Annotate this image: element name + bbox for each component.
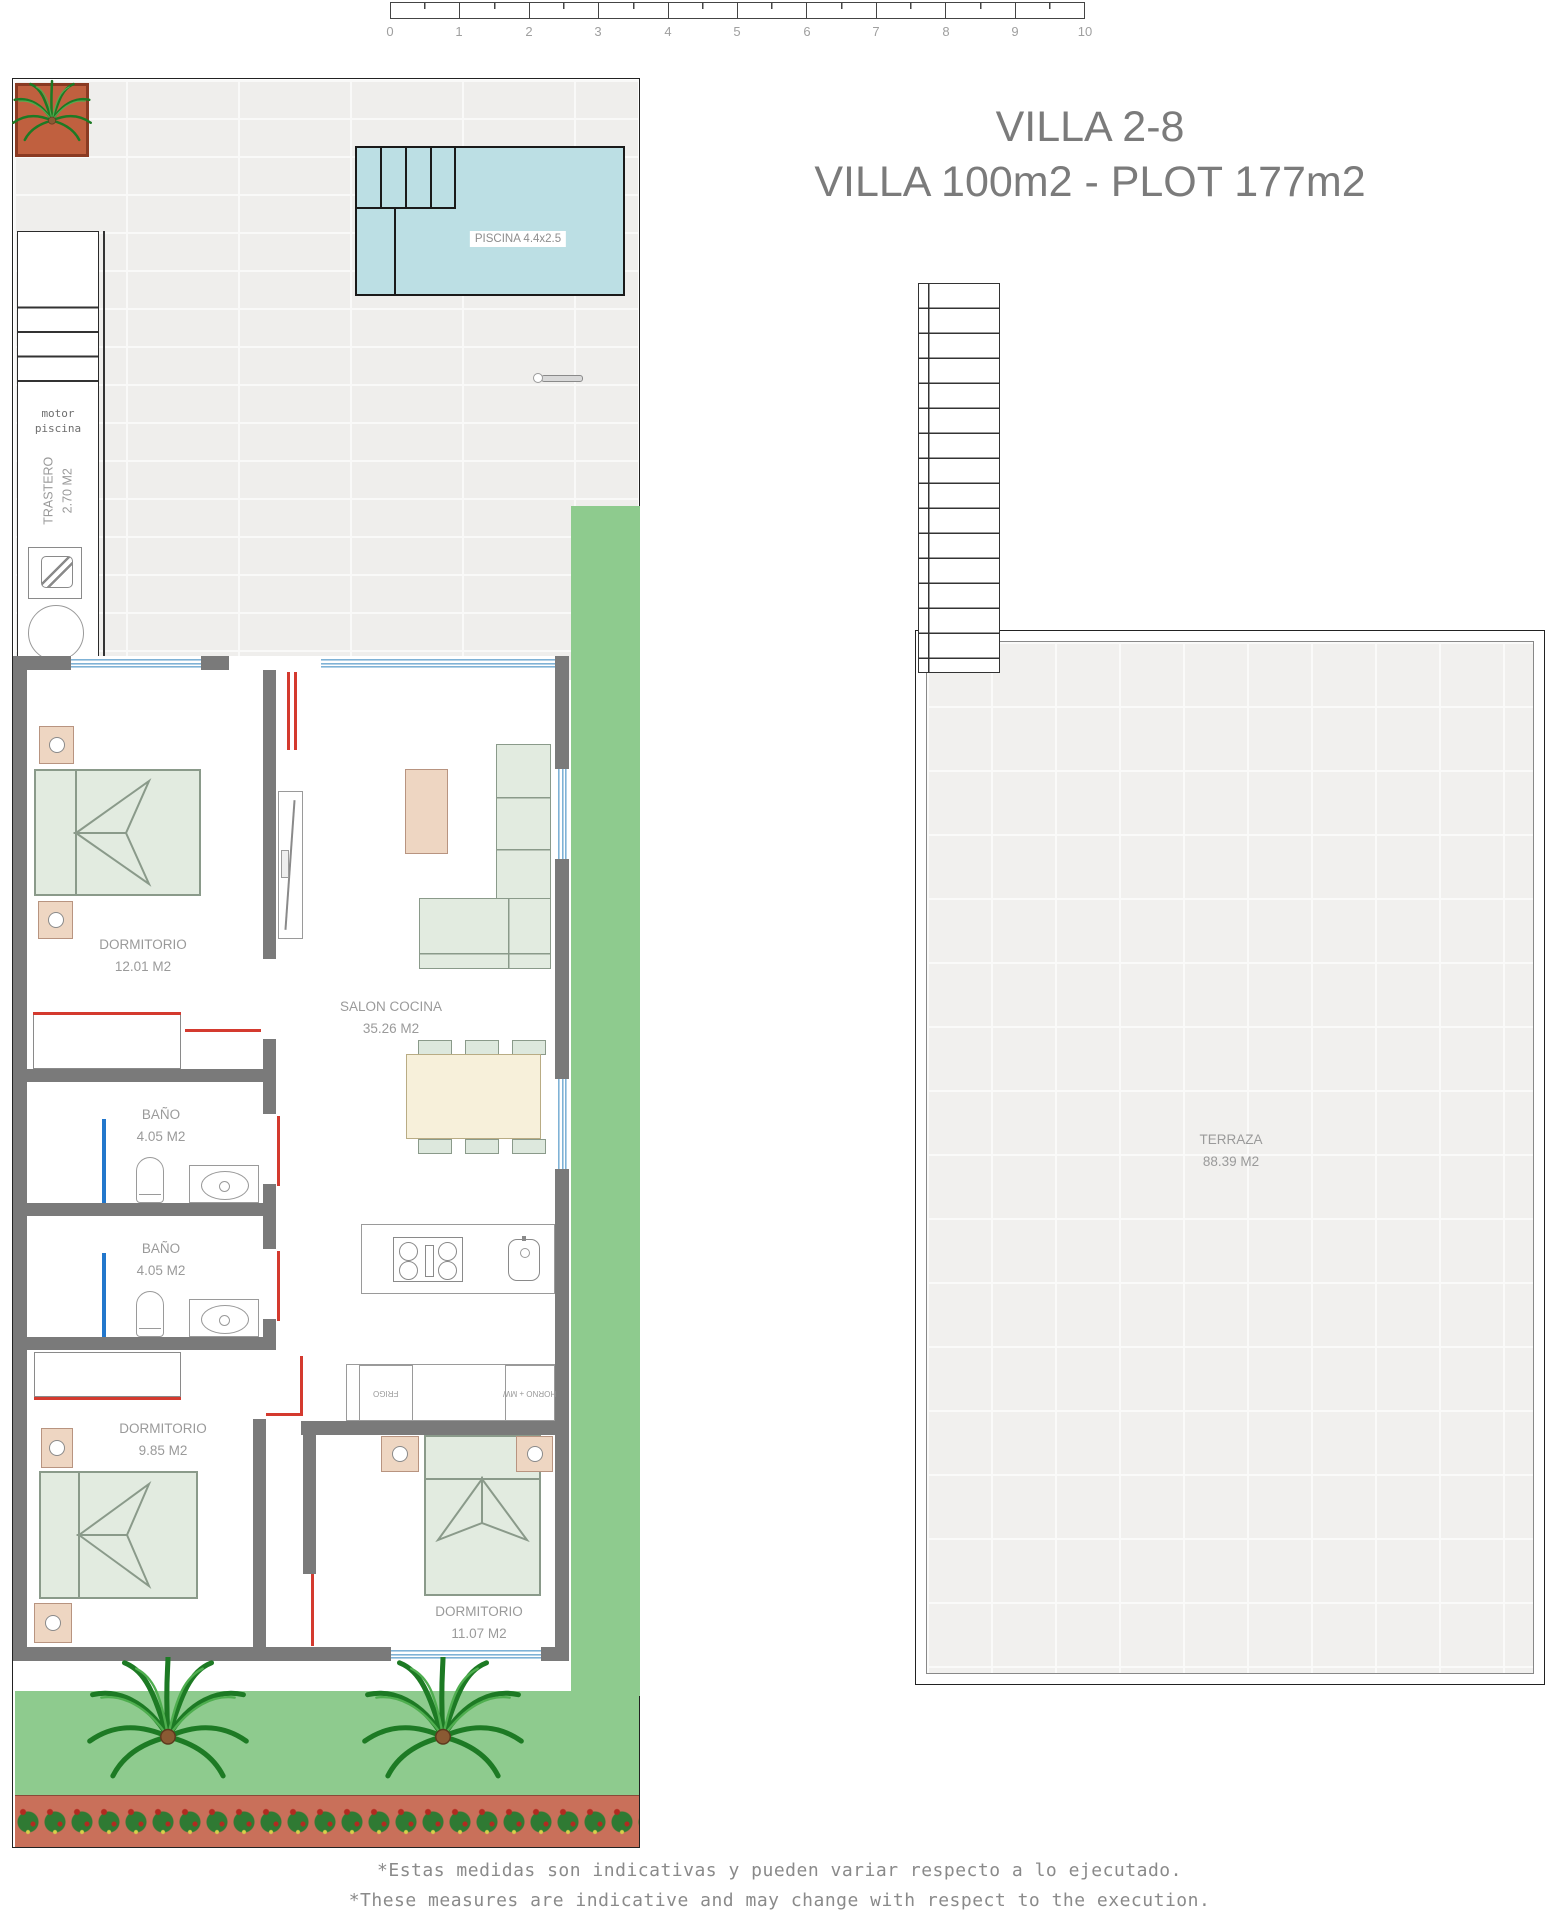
ruler-segment <box>946 3 1015 18</box>
storeroom-outer-wall <box>103 231 105 663</box>
storeroom-steps-icon <box>18 284 98 382</box>
sink-counter <box>189 1299 259 1337</box>
chair-icon <box>512 1040 546 1055</box>
ruler-number: 3 <box>594 24 601 39</box>
disclaimer-es: *Estas medidas son indicativas y pueden … <box>0 1856 1559 1886</box>
entry-door-leaf-red <box>294 672 297 750</box>
room-area: 4.05 M2 <box>137 1260 186 1282</box>
kitchen-sink-icon <box>508 1239 540 1281</box>
wall-left <box>13 656 27 1661</box>
side-garden <box>571 506 640 1696</box>
ruler-number: 2 <box>525 24 532 39</box>
oven-microwave-icon: HORNO + MW <box>505 1365 555 1421</box>
room-area: 35.26 M2 <box>340 1018 442 1040</box>
wall-bath-bedroom2 <box>13 1337 276 1350</box>
scale-ruler <box>390 2 1085 19</box>
sofa-icon <box>496 744 551 901</box>
bed-double-icon <box>39 1471 198 1599</box>
wall-segment <box>263 1184 276 1249</box>
kitchen-counter: FRIGO HORNO + MW <box>346 1364 555 1421</box>
door-leaf-red <box>300 1356 303 1414</box>
sink-counter <box>189 1165 259 1203</box>
ruler-segment <box>669 3 738 18</box>
toilet-icon <box>136 1291 164 1337</box>
entry-door-opening <box>229 656 321 670</box>
villa-plot: PISCINA 4.4x2.5 motor piscina TRASTERO <box>12 78 640 1848</box>
pool-bench-icon <box>355 209 396 296</box>
pool-steps-icon <box>355 146 456 209</box>
door-leaf-red <box>266 1413 303 1416</box>
nightstand-icon <box>516 1436 553 1472</box>
right-wall-window-2 <box>555 1079 569 1169</box>
room-name: DORMITORIO <box>99 934 187 956</box>
living-room-glazing <box>321 656 555 670</box>
door-leaf-red <box>185 1029 261 1032</box>
ruler-number: 0 <box>386 24 393 39</box>
pool-label: PISCINA 4.4x2.5 <box>470 231 566 247</box>
room-area: 11.07 M2 <box>435 1623 523 1645</box>
villa-number: VILLA 2-8 <box>790 100 1390 155</box>
bed-double-icon <box>34 769 201 896</box>
chair-icon <box>465 1139 499 1154</box>
tv-bench-icon <box>278 791 303 939</box>
room-name: DORMITORIO <box>119 1418 207 1440</box>
ruler-segment <box>530 3 599 18</box>
ruler-number: 8 <box>942 24 949 39</box>
wall-bedroom3-hall <box>303 1421 316 1574</box>
palm-tree-icon <box>68 1657 268 1802</box>
nightstand-icon <box>41 1428 73 1468</box>
storeroom-name: TRASTERO <box>41 457 55 525</box>
ruler-number: 5 <box>733 24 740 39</box>
coffee-table-icon <box>405 769 448 854</box>
wardrobe-door-red <box>33 1012 181 1015</box>
shower-screen-blue <box>102 1253 106 1337</box>
door-leaf-red <box>277 1116 280 1186</box>
room-area: 9.85 M2 <box>119 1440 207 1462</box>
terrace-plot: TERRAZA 88.39 M2 <box>915 630 1545 1685</box>
storeroom-area: 2.70 M2 <box>60 468 74 513</box>
bathroom1-label: BAÑO 4.05 M2 <box>137 1104 186 1147</box>
ruler-number: 6 <box>803 24 810 39</box>
shower-screen-blue <box>102 1119 106 1203</box>
nightstand-icon <box>39 726 74 764</box>
staircase <box>918 283 1000 673</box>
terrace-label: TERRAZA 88.39 M2 <box>1199 1129 1262 1172</box>
gate-knob-icon <box>533 373 543 383</box>
boiler-icon <box>28 605 84 661</box>
room-area: 88.39 M2 <box>1199 1151 1262 1173</box>
chair-icon <box>418 1139 452 1154</box>
room-name: BAÑO <box>137 1238 186 1260</box>
wall-bedroom1-bath <box>13 1069 263 1082</box>
storeroom: motor piscina TRASTERO 2.70 M2 <box>17 231 99 663</box>
ruler-number: 7 <box>872 24 879 39</box>
salon-label: SALON COCINA 35.26 M2 <box>340 996 442 1039</box>
room-name: TERRAZA <box>1199 1129 1262 1151</box>
ruler-segment <box>460 3 529 18</box>
ruler-number: 10 <box>1078 24 1092 39</box>
bedroom1-label: DORMITORIO 12.01 M2 <box>99 934 187 977</box>
room-name: BAÑO <box>137 1104 186 1126</box>
bedroom2-label: DORMITORIO 9.85 M2 <box>119 1418 207 1461</box>
nightstand-icon <box>34 1603 72 1643</box>
ruler-segment <box>1016 3 1084 18</box>
nightstand-icon <box>381 1436 419 1472</box>
oven-label: HORNO + MW <box>503 1389 556 1398</box>
chair-icon <box>418 1040 452 1055</box>
storeroom-label: TRASTERO 2.70 M2 <box>39 421 77 561</box>
door-leaf-red <box>311 1574 314 1646</box>
ruler-number: 4 <box>664 24 671 39</box>
disclaimer-en: *These measures are indicative and may c… <box>0 1886 1559 1916</box>
room-name: DORMITORIO <box>435 1601 523 1623</box>
palm-tree-icon <box>9 77 95 157</box>
entry-door-leaf-red <box>287 672 290 750</box>
floor-plan-page: 0 1 2 3 4 5 6 7 8 9 10 VILLA 2-8 VILLA 1… <box>0 0 1559 1920</box>
ruler-segment <box>391 3 460 18</box>
ruler-number: 9 <box>1011 24 1018 39</box>
fridge-icon: FRIGO <box>359 1365 413 1421</box>
ruler-segment <box>807 3 876 18</box>
wardrobe-door-red <box>34 1397 181 1400</box>
washing-machine-icon <box>28 547 82 599</box>
wall-bedroom1-salon <box>263 670 276 959</box>
room-name: SALON COCINA <box>340 996 442 1018</box>
fridge-label: FRIGO <box>373 1389 398 1398</box>
wall-salon-bedroom3 <box>301 1421 569 1435</box>
wall-bedroom2-hall <box>253 1419 266 1647</box>
wall-segment <box>263 1039 276 1114</box>
hob-icon <box>393 1237 463 1282</box>
wardrobe-icon <box>33 1014 181 1069</box>
palm-tree-icon <box>343 1657 543 1802</box>
house: DORMITORIO 12.01 M2 SALON COCINA 35.26 M… <box>13 656 569 1661</box>
dining-table-icon <box>406 1054 541 1139</box>
right-wall-window-1 <box>555 769 569 859</box>
ruler-segment <box>599 3 668 18</box>
chair-icon <box>465 1040 499 1055</box>
disclaimer: *Estas medidas son indicativas y pueden … <box>0 1856 1559 1915</box>
ruler-segment <box>877 3 946 18</box>
plan-title: VILLA 2-8 VILLA 100m2 - PLOT 177m2 <box>790 100 1390 210</box>
villa-size: VILLA 100m2 - PLOT 177m2 <box>790 155 1390 210</box>
chair-icon <box>512 1139 546 1154</box>
bedroom1-window <box>71 656 201 670</box>
ruler-segment <box>738 3 807 18</box>
sofa-chaise-icon <box>419 898 551 969</box>
toilet-icon <box>136 1157 164 1203</box>
bedroom3-label: DORMITORIO 11.07 M2 <box>435 1601 523 1644</box>
room-area: 12.01 M2 <box>99 956 187 978</box>
ruler-number: 1 <box>455 24 462 39</box>
wardrobe-icon <box>34 1352 181 1397</box>
room-area: 4.05 M2 <box>137 1126 186 1148</box>
gate-handle-icon <box>541 375 583 382</box>
nightstand-icon <box>38 901 73 939</box>
bathroom2-label: BAÑO 4.05 M2 <box>137 1238 186 1281</box>
flower-bed <box>15 1795 639 1847</box>
wall-between-baths <box>13 1203 276 1216</box>
door-leaf-red <box>277 1251 280 1321</box>
